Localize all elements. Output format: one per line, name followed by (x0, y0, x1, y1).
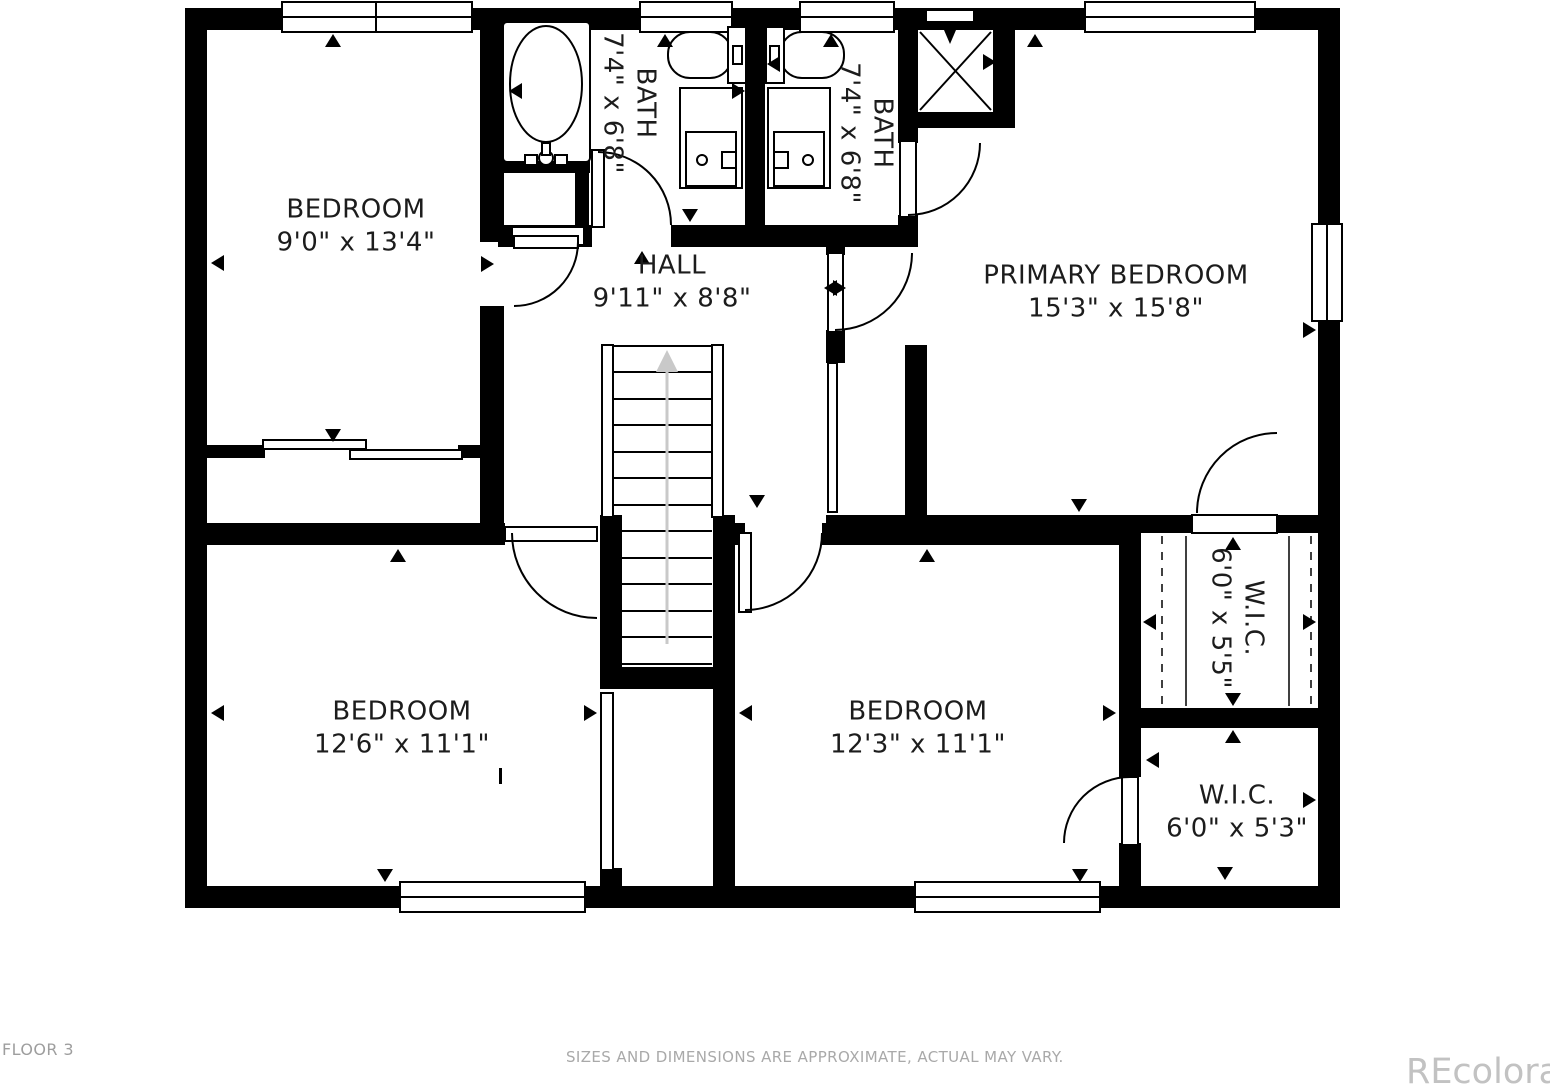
dim-arrow (211, 255, 224, 271)
room-dims: 6'0" x 5'5" (1205, 547, 1238, 689)
window-bedroom-tl (282, 2, 472, 32)
wall-shower-east (993, 8, 1015, 128)
wall-bedroom-tl-east-lower (480, 306, 504, 545)
dim-arrow (682, 209, 698, 222)
wall-outer-right (1318, 8, 1340, 908)
room-dims: 7'4" x 6'8" (597, 32, 630, 174)
room-label-wic-upper: W.I.C. 6'0" x 5'5" (1205, 547, 1270, 689)
dim-arrow (1072, 869, 1088, 882)
door-wic-lower (1064, 777, 1138, 845)
stair-rail-east (712, 345, 723, 517)
dim-arrow (919, 549, 935, 562)
room-name: HALL (593, 250, 752, 283)
door-bedroom-bl (505, 527, 597, 618)
wall-closet-jamb-left (207, 445, 265, 458)
room-name: BATH (629, 32, 662, 174)
wall-stair-bottom (600, 667, 735, 689)
room-name: PRIMARY BEDROOM (983, 260, 1248, 293)
window-bedroom-bl (400, 882, 585, 912)
door-wic-upper (1192, 433, 1277, 533)
dim-arrow (1303, 614, 1316, 630)
stairs (614, 346, 712, 664)
wall-bath-south-b (671, 225, 918, 247)
floor-number-label: FLOOR 3 (2, 1040, 74, 1059)
window-primary-east (1312, 224, 1342, 321)
room-dims: 9'11" x 8'8" (593, 282, 752, 315)
room-dims: 6'0" x 5'3" (1166, 812, 1308, 845)
floor-plan-drawing (0, 0, 1550, 1086)
room-label-hall: HALL 9'11" x 8'8" (593, 250, 752, 315)
room-label-bedroom-br: BEDROOM 12'3" x 11'1" (830, 696, 1006, 761)
stair-up-arrow-icon (656, 350, 678, 372)
room-dims: 12'3" x 11'1" (830, 728, 1006, 761)
room-label-bath-left: BATH 7'4" x 6'8" (597, 32, 662, 174)
wall-bedroom-bl-top (185, 523, 505, 545)
stair-rail-west (602, 345, 613, 517)
window-bedroom-br (915, 882, 1100, 912)
room-label-wic-lower: W.I.C. 6'0" x 5'3" (1166, 780, 1308, 845)
vanity-sink-bath-left (680, 88, 742, 188)
room-name: W.I.C. (1237, 547, 1270, 689)
dim-arrow (1143, 614, 1156, 630)
stair-treads (614, 346, 712, 664)
wall-wic-west-upper (1119, 515, 1141, 777)
room-name: W.I.C. (1166, 780, 1308, 813)
dim-arrow (325, 34, 341, 47)
room-dims: 9'0" x 13'4" (277, 226, 436, 259)
dim-arrow (1027, 34, 1043, 47)
room-name: BEDROOM (830, 696, 1006, 729)
shower-valve-bar (926, 10, 974, 22)
stairwell-side-frame (601, 693, 613, 870)
hall-railing (828, 363, 837, 512)
room-name: BEDROOM (277, 194, 436, 227)
wall-primary-south-b (1277, 515, 1340, 533)
dim-arrow (1225, 730, 1241, 743)
wall-hall-nib-mid (826, 330, 845, 363)
wall-linen-nib (575, 170, 589, 229)
door-bath-right (900, 141, 980, 217)
window-primary (1085, 2, 1255, 32)
wall-stair-west-nib (600, 868, 622, 908)
wall-bedroom-tl-east-upper (480, 8, 504, 242)
room-dims: 15'3" x 15'8" (983, 292, 1248, 325)
toilet-bath-left (668, 27, 746, 83)
vanity-sink-bath-right (768, 88, 830, 188)
dim-arrow (749, 495, 765, 508)
wall-bath-divider (745, 8, 765, 247)
dim-arrow (1225, 693, 1241, 706)
dim-arrow (1303, 322, 1316, 338)
wall-closet-jamb-right (458, 445, 504, 458)
dim-arrow (390, 549, 406, 562)
room-label-primary-bedroom: PRIMARY BEDROOM 15'3" x 15'8" (983, 260, 1248, 325)
window-bath-right (800, 2, 894, 32)
room-label-bedroom-bl: BEDROOM 12'6" x 11'1" (314, 696, 490, 761)
dim-arrow (1217, 867, 1233, 880)
dim-arrow (377, 869, 393, 882)
wall-stair-west (600, 515, 622, 689)
dim-arrow (1071, 499, 1087, 512)
dimensions-disclaimer: SIZES AND DIMENSIONS ARE APPROXIMATE, AC… (566, 1048, 1064, 1066)
room-name: BEDROOM (314, 696, 490, 729)
shower-head-icon (944, 30, 956, 44)
room-label-bath-right: BATH 7'4" x 6'8" (834, 62, 899, 204)
wall-shower-south (898, 112, 1015, 128)
wall-wic-divider (1119, 708, 1340, 728)
door-primary-bedroom (828, 253, 912, 332)
room-dims: 12'6" x 11'1" (314, 728, 490, 761)
window-bath-left (640, 2, 732, 32)
wall-wic-west-lower (1119, 843, 1141, 908)
wall-stair-east (713, 515, 735, 886)
toilet-bath-right (766, 27, 844, 83)
door-bedroom-tl (514, 236, 578, 306)
room-name: BATH (866, 62, 899, 204)
wall-outer-bottom (185, 886, 1340, 908)
wall-primary-west (905, 345, 927, 533)
dim-arrow (211, 705, 224, 721)
dim-arrow (584, 705, 597, 721)
railings (512, 227, 837, 870)
closet-sliding-doors (263, 440, 462, 459)
dim-arrow (739, 705, 752, 721)
recolorado-watermark: REcolorado (1406, 1052, 1550, 1086)
plan-tick-mark (499, 768, 502, 784)
dim-arrow (481, 256, 494, 272)
room-label-bedroom-tl: BEDROOM 9'0" x 13'4" (277, 194, 436, 259)
dim-arrow (1103, 705, 1116, 721)
room-dims: 7'4" x 6'8" (834, 62, 867, 204)
door-bedroom-br (739, 533, 822, 612)
floor-plan-page: BEDROOM 9'0" x 13'4" BATH 7'4" x 6'8" BA… (0, 0, 1550, 1086)
wall-outer-left (185, 8, 207, 908)
dim-arrow (1146, 752, 1159, 768)
